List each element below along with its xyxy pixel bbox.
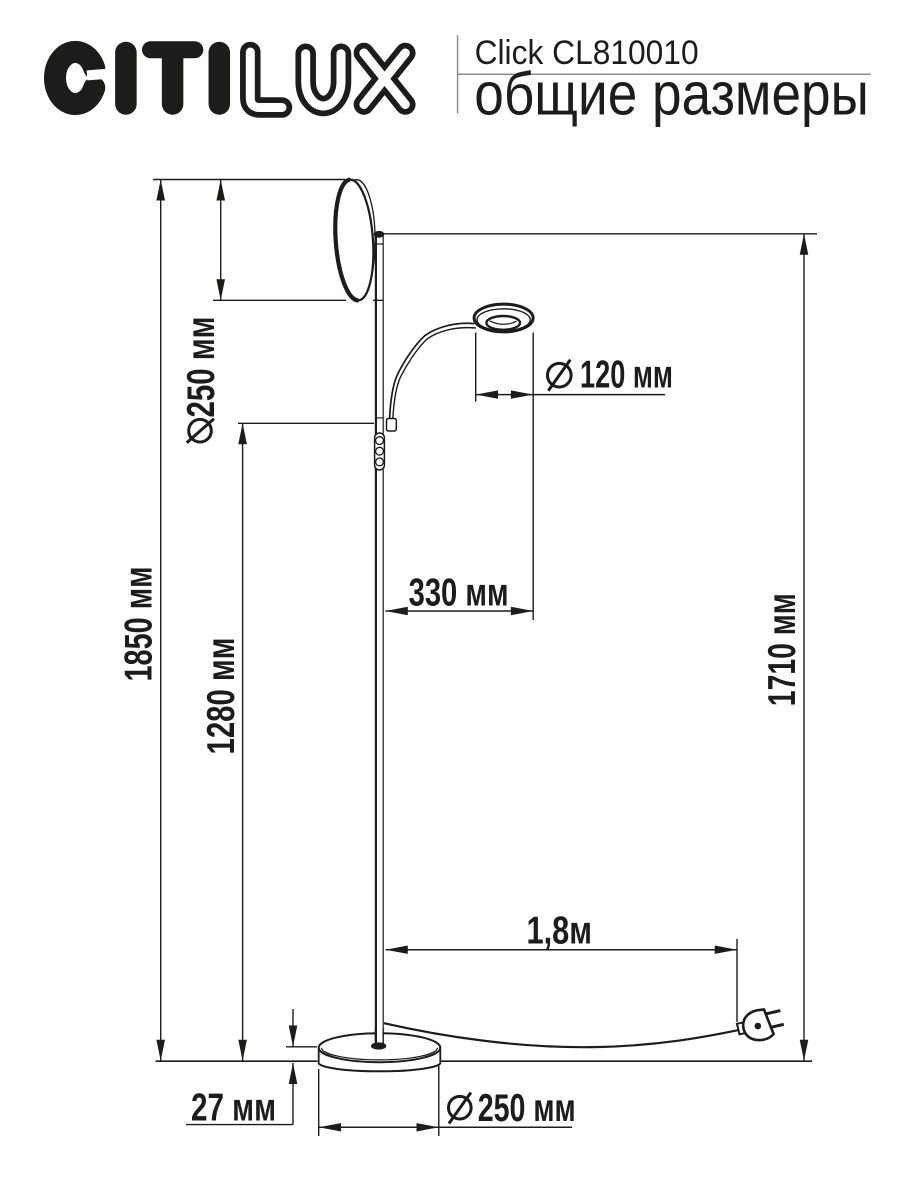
svg-text:1850 мм: 1850 мм bbox=[118, 567, 161, 682]
svg-text:1,8м: 1,8м bbox=[527, 910, 593, 953]
svg-text:1280 мм: 1280 мм bbox=[200, 638, 243, 755]
svg-text:27 мм: 27 мм bbox=[191, 1086, 276, 1129]
svg-text:250 мм: 250 мм bbox=[478, 1087, 576, 1130]
svg-text:250 мм: 250 мм bbox=[180, 317, 223, 418]
svg-text:330 мм: 330 мм bbox=[409, 572, 509, 615]
svg-text:1710 мм: 1710 мм bbox=[761, 593, 804, 706]
svg-text:120 мм: 120 мм bbox=[580, 353, 673, 396]
svg-text:общие размеры: общие размеры bbox=[474, 61, 869, 128]
